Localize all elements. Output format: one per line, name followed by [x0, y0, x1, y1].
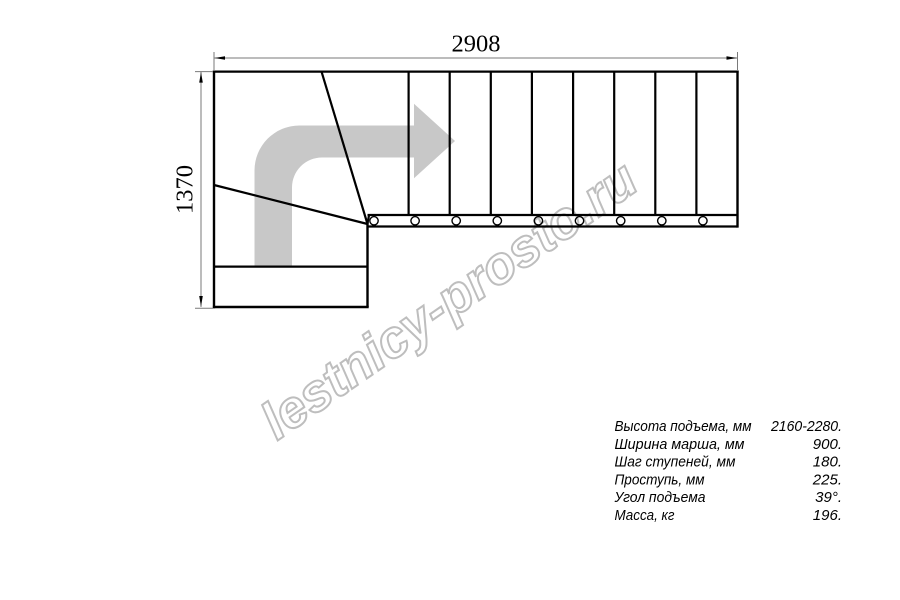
svg-text:225.: 225. — [812, 471, 842, 488]
svg-text:39°.: 39°. — [815, 489, 842, 506]
svg-text:Ширина марша, мм: Ширина марша, мм — [615, 436, 745, 453]
svg-text:196.: 196. — [813, 507, 842, 524]
svg-text:Проступь, мм: Проступь, мм — [615, 471, 705, 488]
svg-text:Высота подъема, мм: Высота подъема, мм — [615, 418, 752, 435]
svg-text:Масса, кг: Масса, кг — [615, 507, 676, 524]
svg-text:Угол подъема: Угол подъема — [614, 489, 706, 506]
svg-text:Шаг ступеней, мм: Шаг ступеней, мм — [615, 454, 736, 471]
svg-text:900.: 900. — [813, 436, 842, 453]
svg-text:2160-2280.: 2160-2280. — [770, 418, 842, 435]
svg-text:2908: 2908 — [452, 31, 501, 58]
svg-text:180.: 180. — [813, 454, 842, 471]
svg-text:1370: 1370 — [172, 165, 199, 214]
